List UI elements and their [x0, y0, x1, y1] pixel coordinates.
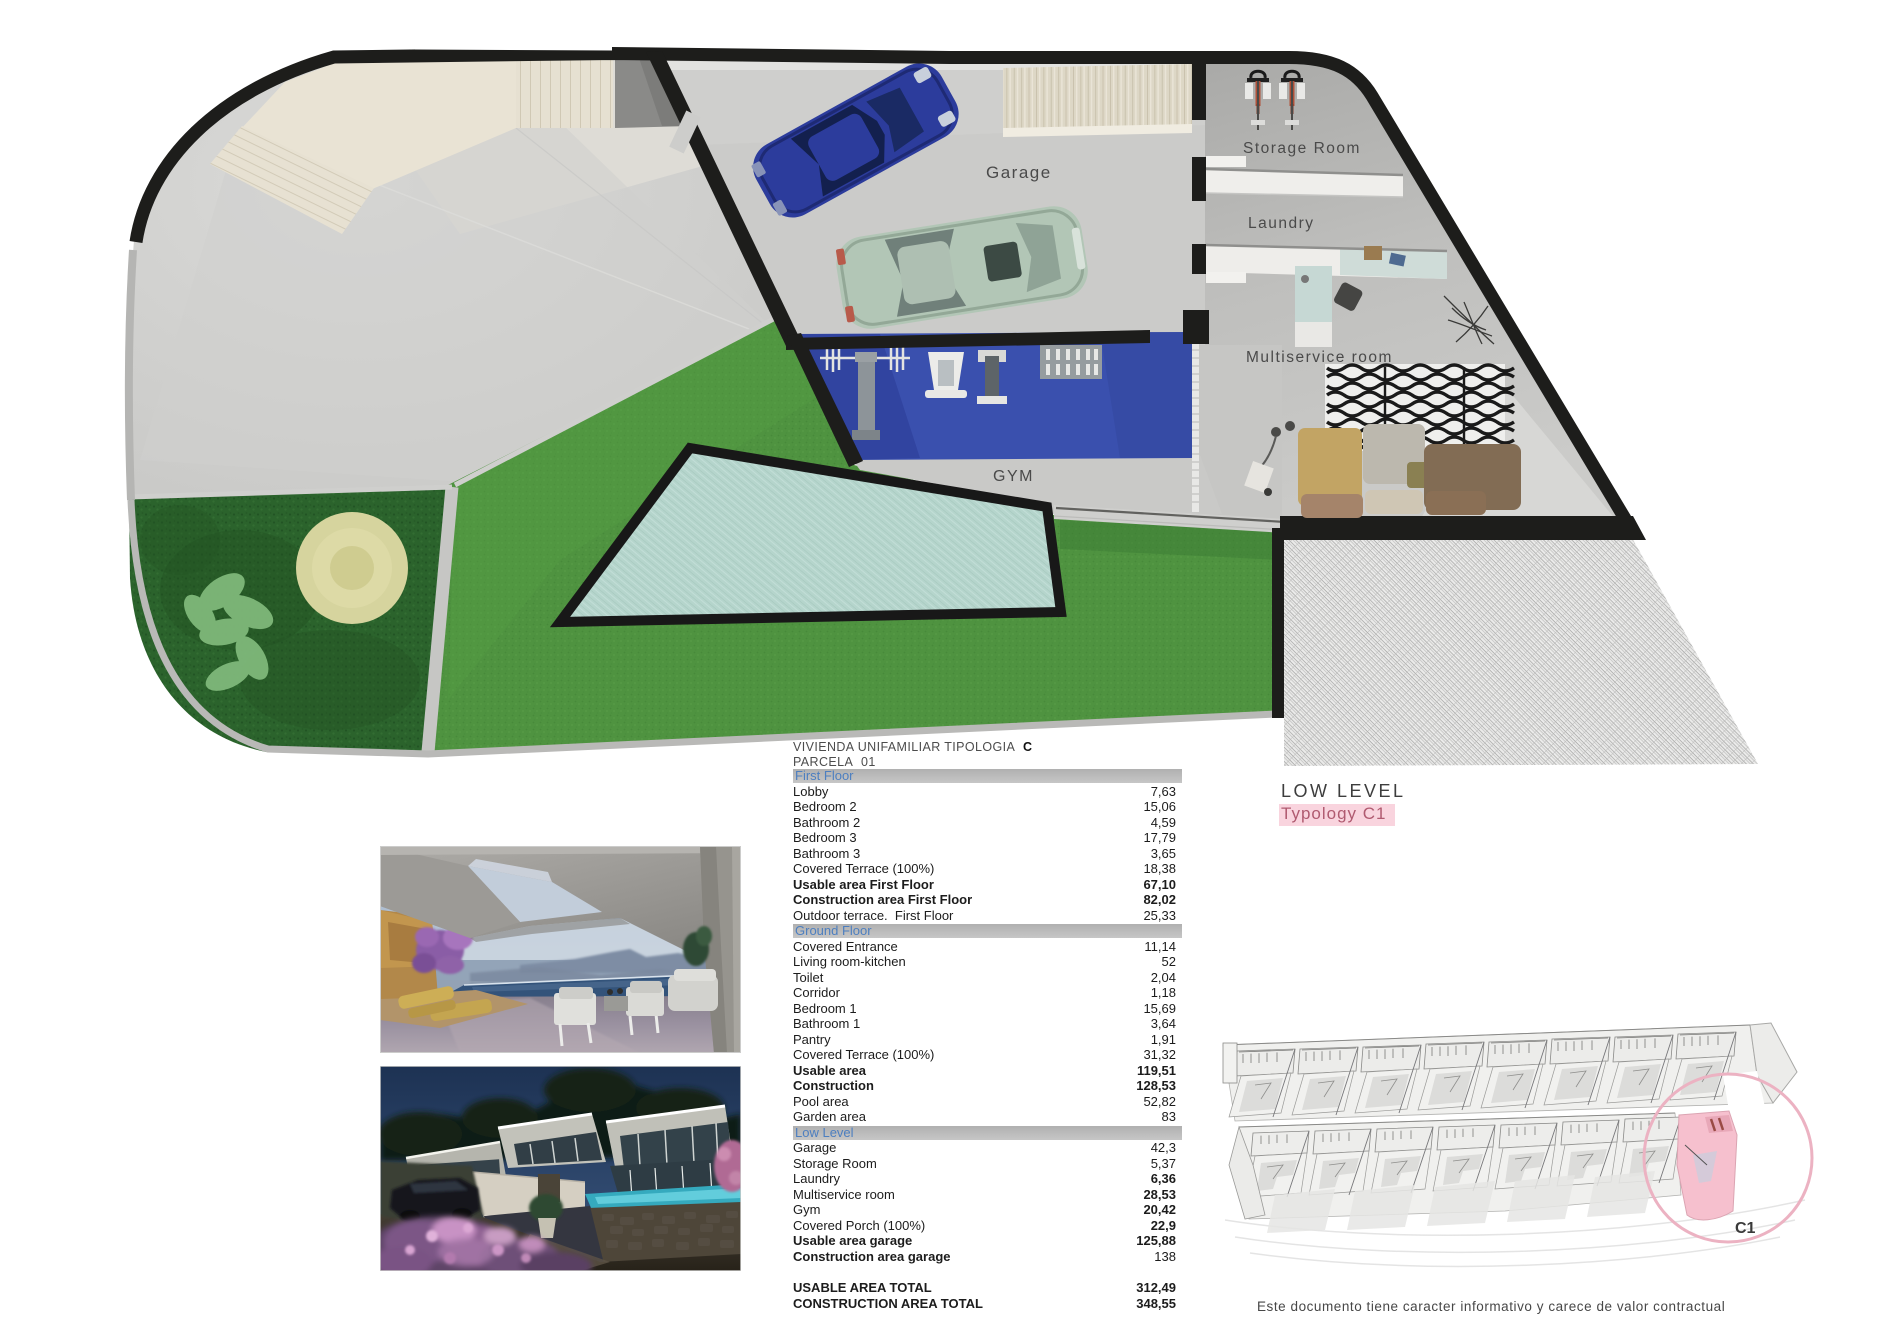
svg-text:Storage Room: Storage Room: [1243, 140, 1361, 157]
svg-text:Laundry: Laundry: [1248, 215, 1315, 232]
svg-text:C1: C1: [1735, 1220, 1756, 1237]
svg-text:GYM: GYM: [993, 468, 1034, 485]
svg-text:Garage: Garage: [986, 163, 1052, 182]
svg-text:Multiservice room: Multiservice room: [1246, 349, 1393, 366]
